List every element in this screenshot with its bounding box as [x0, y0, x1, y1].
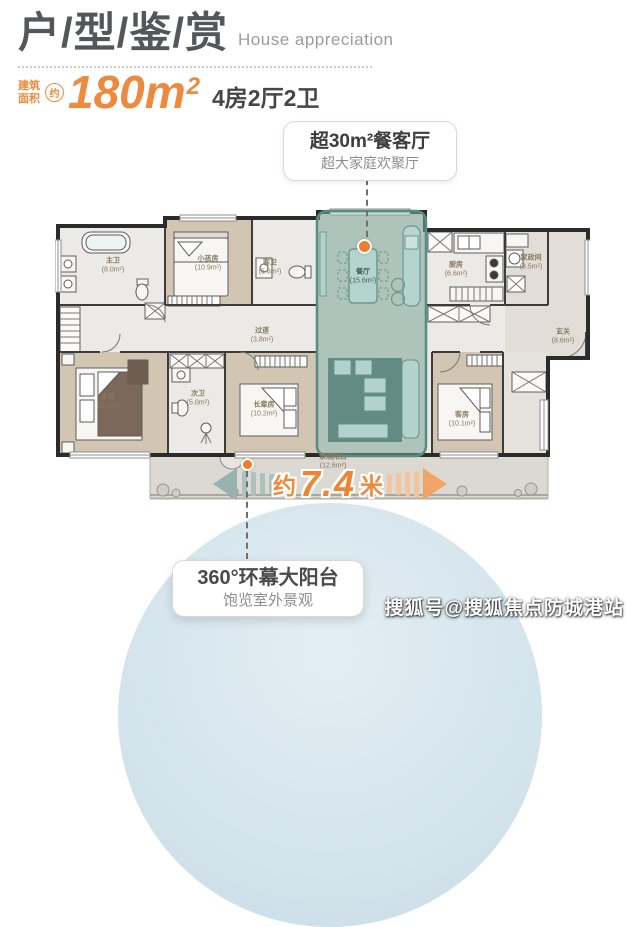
area-prefix-label: 建筑 面积 [18, 80, 40, 105]
balcony-callout-connector [246, 471, 248, 559]
arrow-left-icon [213, 468, 237, 500]
area-value: 180m2 [68, 72, 200, 113]
arrow-right-icon [423, 468, 447, 500]
balcony-marker-dot [241, 458, 254, 471]
area-superscript: 2 [187, 73, 200, 100]
room-label-master-bath: 主卫(8.0m²) [102, 257, 125, 275]
bed-icon [174, 232, 228, 238]
dining-marker-dot [357, 239, 372, 254]
balcony-callout-subtitle: 饱览室外景观 [173, 591, 363, 611]
room-label-dining: 餐厅(15.6m²) [350, 268, 376, 286]
room-label-guest-room: 客房(10.1m²) [449, 411, 475, 429]
dimension-unit: 米 [360, 467, 383, 501]
approx-badge: 约 [45, 83, 64, 102]
room-label-utility: 家政间(3.5m²) [520, 254, 543, 272]
cabinet-icon [128, 360, 148, 384]
page-title: 户/型/鉴/赏 [18, 12, 228, 54]
toilet-icon [289, 266, 305, 278]
dimension-text: 约 7.4 米 [273, 463, 383, 505]
watermark: 搜狐号@搜狐焦点防城港站 [384, 593, 624, 620]
utility-sink [506, 234, 528, 247]
layout-spec: 4房2厅2卫 [212, 79, 319, 113]
balcony-callout-title: 360°环幕大阳台 [173, 566, 363, 591]
room-label-second-bath: 次卫(5.0m²) [187, 390, 210, 408]
balcony-callout: 360°环幕大阳台 饱览室外景观 [172, 560, 364, 617]
room-label-hallway: 过道(3.8m²) [251, 327, 274, 345]
dimension-value: 7.4 [300, 463, 356, 505]
shower-icon [201, 423, 211, 433]
room-label-kids-room: 小孩房(10.9m²) [195, 255, 221, 273]
page-header: 户/型/鉴/赏 House appreciation [18, 12, 394, 54]
dining-callout-subtitle: 超大家庭欢聚厅 [284, 154, 456, 172]
room-label-master-bedroom: 主卧22.3m² [97, 393, 119, 411]
foyer-floor [505, 230, 588, 358]
area-summary: 建筑 面积 约 180m2 4房2厅2卫 [18, 72, 319, 113]
room-label-elder-room: 长辈房(10.2m²) [251, 401, 277, 419]
dimension-prefix: 约 [273, 467, 296, 501]
room-label-foyer: 玄关(8.6m²) [552, 328, 575, 346]
dining-callout-title: 超30m²餐客厅 [284, 130, 456, 154]
room-label-guest-bath: 客卫(5.6m²) [259, 259, 282, 277]
room-label-kitchen: 厨房(6.6m²) [445, 261, 468, 279]
page-subtitle: House appreciation [238, 30, 393, 50]
dining-callout: 超30m²餐客厅 超大家庭欢聚厅 [283, 121, 457, 181]
dining-callout-connector [366, 179, 368, 237]
